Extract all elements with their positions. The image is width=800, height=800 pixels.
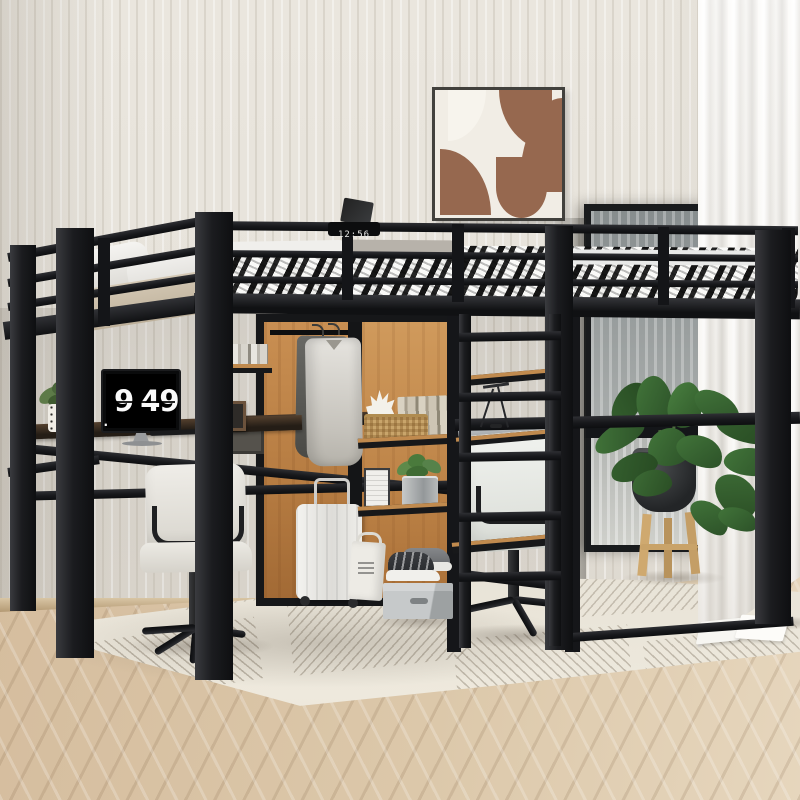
- ladder-rung: [459, 391, 561, 402]
- bed-post-rear-left: [10, 245, 36, 611]
- ladder-rung: [459, 571, 561, 582]
- jacket-light: [305, 338, 363, 467]
- room-photo: . 9 49: [0, 0, 800, 800]
- ladder-rung: [459, 511, 561, 522]
- bed-post-mid-left: [195, 212, 233, 680]
- sneaker-front: [388, 552, 434, 572]
- mini-shelf-board: [228, 364, 272, 373]
- rail-digital-clock: 12:56: [328, 222, 380, 236]
- magazine-file: [364, 468, 390, 508]
- ladder-rail: [459, 314, 471, 648]
- bed-post-front-left: [56, 228, 94, 658]
- monitor: . 9 49: [101, 369, 181, 433]
- sneaker-front-sole: [386, 570, 440, 581]
- flip-split-line: [107, 401, 175, 403]
- plant-stand-ring: [640, 544, 698, 550]
- bed-post-front-right: [755, 230, 791, 624]
- guardrail-stile: [658, 227, 669, 305]
- artwork-arc: [448, 90, 486, 141]
- artwork-arc: [496, 157, 547, 218]
- monitor-base: [122, 441, 162, 446]
- wall-artwork: [432, 87, 565, 221]
- clock-am-dot: .: [103, 416, 107, 428]
- guardrail-stile: [452, 224, 464, 302]
- artwork-arc: [440, 149, 491, 216]
- tote-bag-print: [358, 560, 374, 574]
- desk-lamp-base: [490, 424, 502, 428]
- book-stack: [232, 344, 268, 364]
- guardrail-stile: [98, 238, 110, 326]
- rail-clock-time: 12:56: [338, 230, 370, 240]
- ladder-rung: [459, 331, 561, 342]
- suitcase-wheel: [348, 598, 358, 608]
- ladder-rail: [549, 314, 561, 646]
- suitcase-wheel: [300, 596, 310, 606]
- ladder-rung: [459, 451, 561, 462]
- storage-box-handle: [410, 598, 428, 604]
